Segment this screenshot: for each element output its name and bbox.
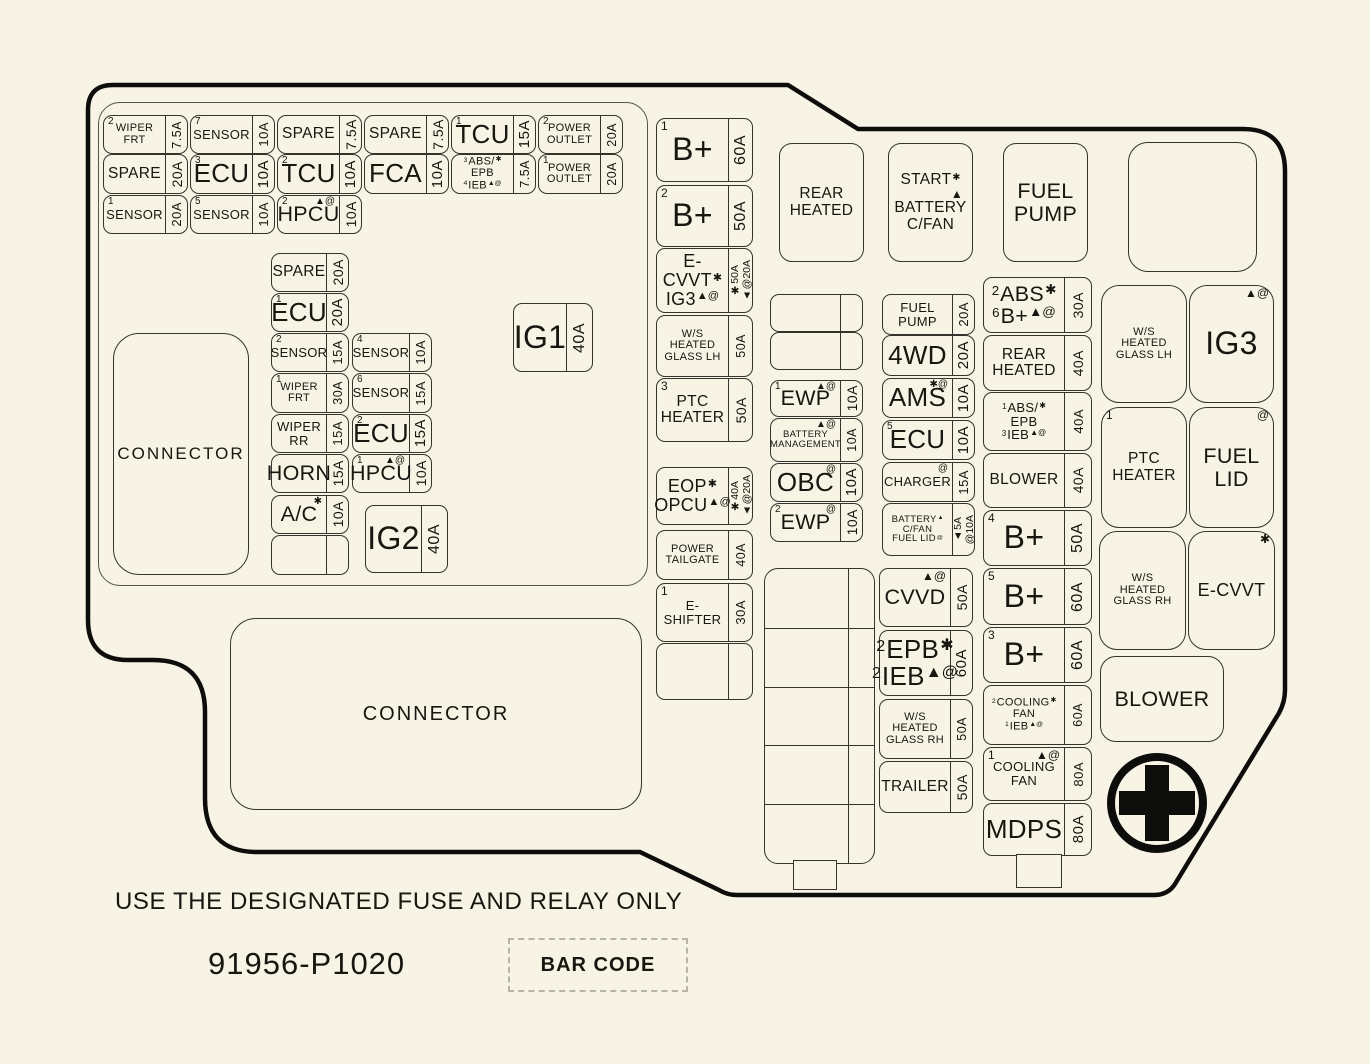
label-text: MANAGEMENT xyxy=(770,439,841,450)
variant-mark: ✱ xyxy=(952,172,960,183)
relay-blower: BLOWER xyxy=(1100,656,1224,742)
relay-w-s-heated-glass-lh: W/SHEATEDGLASS LH xyxy=(1101,285,1187,403)
amp-value: 20A xyxy=(605,123,619,147)
label-text: SENSOR xyxy=(106,207,163,222)
amp-rating: 10A xyxy=(426,155,448,193)
amp-rating: 20A xyxy=(600,116,622,153)
label: 7SENSOR xyxy=(191,116,252,153)
label: 5B+ xyxy=(984,569,1064,624)
amp-value: 10A xyxy=(342,160,359,188)
label: E-CVVT✱IG3▲@ xyxy=(657,249,728,312)
index-number: 5 xyxy=(988,570,995,582)
index-number: 1 xyxy=(456,117,462,127)
index-number: 3 xyxy=(464,157,468,164)
fuse-fuel-pump: FUELPUMP20A xyxy=(882,294,975,335)
label-text: SENSOR xyxy=(353,385,410,400)
amp-value: 20A xyxy=(330,259,346,285)
amp-rating: 10A xyxy=(840,504,862,541)
index-number: 1 xyxy=(1005,721,1009,728)
label-line: B+ xyxy=(1004,580,1045,613)
variant-mark: ▲@ xyxy=(816,420,836,430)
amp-rating: 60A xyxy=(728,119,752,181)
fuse-2-ecu: 2ECU15A xyxy=(352,414,432,453)
label-text: IEB xyxy=(468,179,487,191)
fuse-epb-ieb: 2EPB✱2IEB▲@60A xyxy=(879,630,973,696)
amp-rating: 20A xyxy=(165,155,187,193)
amp-value: 15A xyxy=(956,470,971,495)
fuse-1-sensor: 1SENSOR20A xyxy=(103,195,188,234)
label-text: BLOWER xyxy=(1115,687,1210,711)
amp-rating: 60A xyxy=(1064,686,1091,744)
amp-value: 50A xyxy=(733,397,749,423)
label-line: SPARE xyxy=(273,264,326,280)
variant-mark: ▲@ xyxy=(1245,287,1269,299)
label-line: C/FAN xyxy=(907,217,954,233)
variant-mark: @ xyxy=(826,505,836,515)
amp-value: 20A xyxy=(605,162,619,186)
variant-mark: ✱ xyxy=(1045,282,1056,297)
index-number: 7 xyxy=(195,117,201,127)
label-line: OPCU▲@ xyxy=(654,496,731,515)
amp-value: 20A xyxy=(955,341,972,369)
relay-fuel-pump: FUELPUMP xyxy=(1003,143,1088,262)
label xyxy=(272,536,326,574)
amp-rating: 10A xyxy=(339,196,361,233)
label-line: FAN xyxy=(1011,774,1037,788)
variant-mark: ▲@ xyxy=(816,382,836,392)
label-text: MDPS xyxy=(986,814,1062,844)
amp-value: 15A xyxy=(330,460,346,486)
label-text: ECU xyxy=(194,158,250,188)
label-line: SENSOR xyxy=(353,386,410,400)
amp-value: 80A xyxy=(1071,762,1086,787)
fuse-2-sensor: 2SENSOR15A xyxy=(271,333,349,372)
label-line: TCU xyxy=(455,121,509,148)
label-text: HEATED xyxy=(892,722,938,734)
label: SPARE xyxy=(272,254,326,291)
label: W/SHEATEDGLASS RH xyxy=(1100,532,1185,649)
amp-value: 10A xyxy=(845,428,859,452)
label-line: 1IEB▲@ xyxy=(1005,721,1043,733)
amp-value: 7.5A xyxy=(170,121,184,149)
label-text: FCA xyxy=(369,158,422,188)
label-text: GLASS LH xyxy=(1116,349,1172,361)
fuse-abs-bplus: 2ABS✱6B+▲@30A xyxy=(983,277,1092,333)
amp-rating: 10A xyxy=(952,421,974,459)
label-line: B+ xyxy=(672,199,713,232)
label-text: IEB xyxy=(882,661,925,691)
amp-rating: 50A xyxy=(950,569,972,626)
label-line: 3IEB▲@ xyxy=(1002,428,1046,442)
fuse-spare: SPARE20A xyxy=(271,253,349,292)
label-text: W/S xyxy=(904,711,926,723)
label-line: FRT xyxy=(123,135,145,146)
stack-divider xyxy=(765,628,874,629)
fuse-1-tcu: 1TCU15A xyxy=(451,115,536,154)
label: 1WIPERFRT xyxy=(272,374,326,412)
amp-value: 30A xyxy=(733,600,748,625)
index-number: 2 xyxy=(276,335,282,345)
label-line: MDPS xyxy=(986,816,1062,843)
fuse-2-power-outlet: 2POWEROUTLET20A xyxy=(538,115,623,154)
amp-rating: 15A xyxy=(326,415,348,452)
label-text: E-CVVT xyxy=(663,251,712,290)
index-number: 3 xyxy=(1002,429,1006,438)
label-text: HEATED xyxy=(670,339,716,351)
label-line: 1ABS/✱ xyxy=(1002,401,1046,415)
label-line: SENSOR xyxy=(193,208,250,222)
label: 2▲@HPCU xyxy=(278,196,339,233)
amp-rating: ▲5A@10A xyxy=(952,504,974,555)
label-text: 4WD xyxy=(888,340,947,370)
index-number: 6 xyxy=(992,305,999,320)
index-number: 2 xyxy=(543,117,549,127)
label-text: TRAILER xyxy=(881,778,949,795)
amp-rating: 10A xyxy=(252,155,274,193)
label: EOP✱OPCU▲@ xyxy=(657,468,728,524)
amp-value: 15A xyxy=(330,340,345,365)
label xyxy=(771,295,840,331)
label-line: ECU xyxy=(194,160,250,187)
amp-value: 80A xyxy=(1070,815,1087,843)
label-text: B+ xyxy=(1004,636,1045,672)
label: TRAILER xyxy=(880,762,950,812)
amp-rating: 7.5A xyxy=(165,116,187,153)
label: 2@EWP xyxy=(771,504,840,541)
fuse-abs-epb-ieb: 1ABS/✱EPB3IEB▲@40A xyxy=(983,392,1092,451)
variant-mark: @ xyxy=(937,535,943,541)
label: ✱A/C xyxy=(272,496,326,533)
amp-rating: 30A xyxy=(728,584,752,641)
fuse-empty-slot xyxy=(770,332,863,370)
label: 3PTCHEATER xyxy=(657,379,728,441)
fuse-5-bplus: 5B+60A xyxy=(983,568,1092,625)
amp-rating: 50A xyxy=(728,379,752,441)
amp-value: 50A xyxy=(734,334,748,358)
amp-value: 20A xyxy=(169,161,185,187)
label-line: FAN xyxy=(1013,709,1035,720)
fuse-battery-management: ▲@BATTERYMANAGEMENT10A xyxy=(770,418,863,462)
variant-mark: ▲@ xyxy=(697,290,719,302)
label: 2TCU xyxy=(278,155,339,193)
amp-value: 7.5A xyxy=(518,160,532,188)
label-text: GLASS RH xyxy=(1113,595,1171,607)
fuse-abs-epb-ieb: 3ABS/✱EPB4IEB▲@7.5A xyxy=(451,154,536,194)
variant-mark: ▲@ xyxy=(708,496,730,508)
amp-rating: 10A xyxy=(409,334,431,371)
label: 3B+ xyxy=(984,628,1064,682)
label-text: OUTLET xyxy=(547,173,592,185)
amp-rating: 50A xyxy=(728,316,752,376)
variant-mark: ✱ xyxy=(1260,533,1270,545)
label-line: MANAGEMENT xyxy=(770,440,841,450)
relay-e-cvvt: ✱E-CVVT xyxy=(1188,531,1275,650)
amp-value: 10A xyxy=(844,385,860,411)
label: FUELPUMP xyxy=(883,295,952,334)
index-number: 1 xyxy=(775,382,781,392)
fuse-cooling-fan-ieb: 2COOLING✱FAN1IEB▲@60A xyxy=(983,685,1092,745)
variant-mark: ✱ xyxy=(314,497,322,507)
variant-mark: ✱ xyxy=(940,636,954,654)
variant-mark: ✱ xyxy=(708,478,717,490)
label-text: HORN xyxy=(267,461,332,485)
amp-value: 30A xyxy=(1070,292,1086,318)
amp-value: 10A xyxy=(256,122,271,147)
stack-divider xyxy=(765,745,874,746)
label-line: SHIFTER xyxy=(664,613,722,627)
label-line: REAR xyxy=(799,186,843,202)
variant-mark: ▲@ xyxy=(1030,428,1046,437)
amp-rating xyxy=(326,536,348,574)
label-line: EPB xyxy=(1011,415,1038,429)
amp-value: 10A xyxy=(255,160,272,188)
amp-rating xyxy=(840,333,862,369)
index-number: 1 xyxy=(108,197,114,207)
fuse-horn: HORN15A xyxy=(271,454,349,493)
index-number: 6 xyxy=(357,375,363,385)
index-number: 1 xyxy=(661,585,668,597)
label-line: TCU xyxy=(281,160,335,187)
fuse-1-wiper-frt: 1WIPERFRT30A xyxy=(271,373,349,413)
label-line: WIPER xyxy=(277,420,321,434)
amp-value: 60A xyxy=(953,649,970,677)
label-line: 2ABS✱ xyxy=(992,283,1057,305)
index-number: 2 xyxy=(661,187,668,199)
relay-ig3: ▲@IG3 xyxy=(1189,285,1274,403)
amp-value: ▲@20A xyxy=(741,475,753,516)
label-text: TAILGATE xyxy=(666,554,720,566)
label-line: 4WD xyxy=(888,342,947,369)
label: IG1 xyxy=(514,304,566,371)
label-text: ABS xyxy=(1000,282,1044,306)
label: W/SHEATEDGLASS LH xyxy=(657,316,728,376)
index-number: 1 xyxy=(1106,409,1113,421)
label-text: FAN xyxy=(1011,773,1037,788)
label-text: SENSOR xyxy=(271,345,328,360)
label: @CHARGER xyxy=(883,463,952,501)
usage-notice: USE THE DESIGNATED FUSE AND RELAY ONLY xyxy=(115,888,682,916)
barcode-label: BAR CODE xyxy=(541,954,656,977)
amp-rating: 10A xyxy=(252,116,274,153)
label-text: FRT xyxy=(123,134,145,146)
amp-rating: 10A xyxy=(339,155,361,193)
label-text: B+ xyxy=(672,131,713,167)
label-text: PTC xyxy=(677,393,709,410)
amp-rating: 10A xyxy=(840,464,862,501)
label-line: FUEL xyxy=(1017,180,1073,202)
amp-value: 50A xyxy=(732,201,750,231)
amp-rating: 7.5A xyxy=(513,155,535,193)
relay-empty-slot xyxy=(1128,142,1257,272)
label xyxy=(771,333,840,369)
amp-rating: 20A xyxy=(165,196,187,233)
amp-rating: 10A xyxy=(840,381,862,416)
label-line: FUEL xyxy=(900,301,934,315)
fuse-w-s-heated-glass-rh: W/SHEATEDGLASS RH50A xyxy=(879,699,973,759)
amp-rating: 50A xyxy=(950,700,972,758)
label-text: LID xyxy=(1214,467,1248,491)
label-text: SPARE xyxy=(108,165,161,182)
amp-value: 50A xyxy=(1069,523,1087,553)
label: 4SENSOR xyxy=(353,334,409,371)
amp-rating: 15A xyxy=(513,116,535,153)
index-number: 2 xyxy=(357,416,363,426)
amp-rating: 10A xyxy=(952,379,974,417)
label-text: B+ xyxy=(1004,578,1045,614)
amp-rating xyxy=(840,295,862,331)
label: ▲@CVVD xyxy=(880,569,950,626)
label-line: FCA xyxy=(369,160,422,187)
amp-rating: 20A xyxy=(952,336,974,375)
label-line: GLASS LH xyxy=(1116,350,1172,361)
amp-value: 15A xyxy=(516,120,533,148)
fuse-e-cvvt-ig3: E-CVVT✱IG3▲@✱50A▲@20A xyxy=(656,248,753,313)
variant-mark: ▲@ xyxy=(1029,721,1043,728)
label-text: C/FAN xyxy=(907,216,954,233)
label-text: EWP xyxy=(781,510,831,534)
index-number: 3 xyxy=(988,629,995,641)
label-line: PUMP xyxy=(1014,203,1077,225)
index-number: 2 xyxy=(992,698,996,705)
label-text: W/S xyxy=(1132,572,1154,584)
amp-rating: 50A xyxy=(728,186,752,246)
label-line: IG3▲@ xyxy=(666,290,719,309)
label-line: SENSOR xyxy=(353,346,410,360)
fuse-1-ecu: 1ECU20A xyxy=(271,293,349,332)
label-text: SPARE xyxy=(369,125,422,142)
label-line: GLASS LH xyxy=(664,352,720,363)
label-text: B+ xyxy=(672,197,713,233)
amp-value: 10A xyxy=(955,426,972,454)
relay-1-ptc-heater: 1PTCHEATER xyxy=(1101,407,1187,528)
amp-value: 60A xyxy=(1069,582,1087,612)
amp-value: ✱40A xyxy=(729,481,741,512)
variant-mark: ✱@ xyxy=(929,380,948,390)
amp-rating: 15A xyxy=(952,463,974,501)
index-number: 3 xyxy=(661,380,668,392)
label-text: B+ xyxy=(1004,519,1045,555)
label: 1PTCHEATER xyxy=(1102,408,1186,527)
fuse-spare: SPARE7.5A xyxy=(364,115,449,154)
amp-value: 10A xyxy=(343,201,359,227)
fuse-1-ewp: 1▲@EWP10A xyxy=(770,380,863,417)
label-text: B+ xyxy=(1001,304,1029,328)
label: FUELPUMP xyxy=(1004,144,1087,261)
amp-value: 15A xyxy=(413,381,428,406)
label-line: EOP✱ xyxy=(668,477,717,496)
empty-fuse-stack xyxy=(764,568,875,864)
amp-value: ▲5A xyxy=(952,517,964,542)
label: 1E-SHIFTER xyxy=(657,584,728,641)
index-number: 1 xyxy=(357,456,363,466)
mounting-tab xyxy=(793,860,837,890)
label: 1B+ xyxy=(657,119,728,181)
index-number: 2 xyxy=(876,637,885,655)
relay-w-s-heated-glass-rh: W/SHEATEDGLASS RH xyxy=(1099,531,1186,650)
label-text: PTC xyxy=(1128,450,1160,467)
amp-value: 50A xyxy=(955,717,969,741)
amp-value: ✱50A xyxy=(729,265,741,296)
amp-value: 10A xyxy=(413,340,428,365)
label: ✱@AMS xyxy=(883,379,952,417)
label-line: B+ xyxy=(1004,638,1045,671)
label-line: IG2 xyxy=(367,522,419,555)
amp-rating: ✱40A▲@20A xyxy=(728,468,752,524)
label-text: COOLING xyxy=(997,697,1050,709)
label-text: REAR xyxy=(1002,346,1046,363)
label-text: HEATER xyxy=(1112,467,1176,484)
amp-value: 7.5A xyxy=(343,119,359,150)
label-line: SPARE xyxy=(369,126,422,142)
amp-rating: 7.5A xyxy=(426,116,448,153)
label-line: FRT xyxy=(288,393,310,404)
label: 1TCU xyxy=(452,116,513,153)
label-text: W/S xyxy=(1133,326,1155,338)
label-line: SENSOR xyxy=(271,346,328,360)
label xyxy=(657,644,728,699)
index-number: 2 xyxy=(282,156,288,166)
label-text: SPARE xyxy=(282,125,335,142)
label-text: FUEL LID xyxy=(892,533,936,544)
fuse-3-bplus: 3B+60A xyxy=(983,627,1092,683)
fuse-rear-heated: REARHEATED40A xyxy=(983,335,1092,391)
fuse-w-s-heated-glass-lh: W/SHEATEDGLASS LH50A xyxy=(656,315,753,377)
label: 1SENSOR xyxy=(104,196,165,233)
amp-value: @10A xyxy=(964,515,976,544)
label: POWERTAILGATE xyxy=(657,531,728,579)
fuse-spare: SPARE7.5A xyxy=(277,115,362,154)
label-line: GLASS RH xyxy=(886,735,944,746)
index-number: 1 xyxy=(543,156,549,166)
amp-rating: 80A xyxy=(1064,804,1091,855)
fuse-fca: FCA10A xyxy=(364,154,449,194)
label: BLOWER xyxy=(984,454,1064,507)
fuse-5-ecu: 5ECU10A xyxy=(882,420,975,460)
label-line: SENSOR xyxy=(193,128,250,142)
amp-value: 40A xyxy=(1071,409,1086,434)
label-line: HORN xyxy=(267,462,332,484)
label: 2POWEROUTLET xyxy=(539,116,600,153)
fuse-empty-slot xyxy=(770,294,863,332)
index-number: 4 xyxy=(463,180,467,187)
amp-value: 10A xyxy=(955,384,972,412)
label: W/SHEATEDGLASS LH xyxy=(1102,286,1186,402)
amp-value: 20A xyxy=(169,202,184,227)
amp-rating: 7.5A xyxy=(339,116,361,153)
amp-rating: 40A xyxy=(1064,454,1091,507)
amp-rating xyxy=(728,644,752,699)
label-line: 2EPB✱ xyxy=(876,636,953,663)
label: 2WIPERFRT xyxy=(104,116,165,153)
amp-rating: 50A xyxy=(950,762,972,812)
label: SPARE xyxy=(278,116,339,153)
fuse-2-bplus: 2B+50A xyxy=(656,185,753,247)
amp-value: 50A xyxy=(954,584,970,610)
label-text: PUMP xyxy=(898,314,937,329)
label-text: ABS/ xyxy=(468,156,494,168)
label-text: FUEL xyxy=(1203,444,1259,468)
label-text: TCU xyxy=(455,119,509,149)
variant-mark: ▲@ xyxy=(1029,304,1056,319)
variant-mark: ✱ xyxy=(713,272,722,284)
label: MDPS xyxy=(984,804,1064,855)
fuse-1-cooling-fan: 1▲@COOLINGFAN80A xyxy=(983,747,1092,801)
amp-value: 40A xyxy=(1070,350,1086,376)
label: BLOWER xyxy=(1101,657,1223,741)
fuse-2-wiper-frt: 2WIPERFRT7.5A xyxy=(103,115,188,154)
label-line: EPB xyxy=(471,168,494,179)
label-text: IG3 xyxy=(1205,325,1257,361)
